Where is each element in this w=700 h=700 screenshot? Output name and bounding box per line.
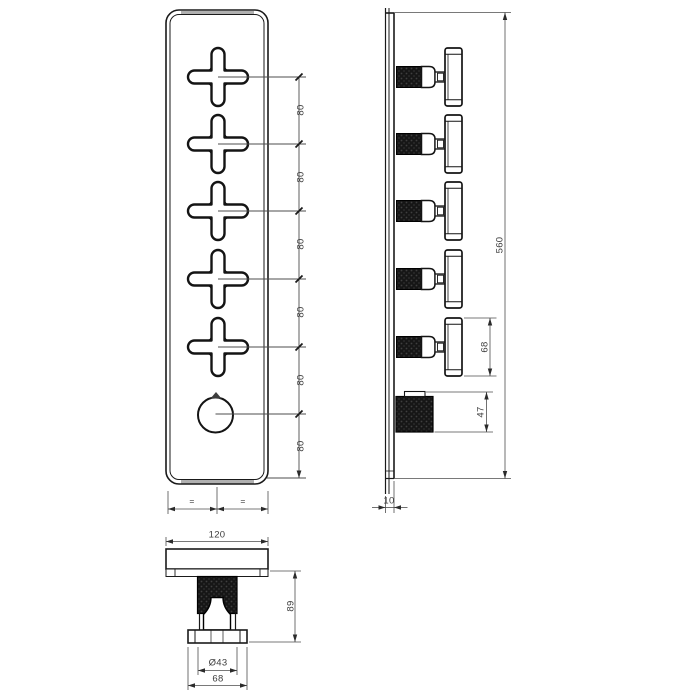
dim-label-spacing-2: 80 (296, 171, 307, 182)
spacing-dimension-chain (296, 74, 303, 479)
front-view (166, 10, 306, 514)
dim-label-equal-left: = (189, 496, 194, 506)
dim-label-spacing-4: 80 (296, 306, 307, 317)
dim-label-spacing-3: 80 (296, 238, 307, 249)
dim-label-plate-width: 120 (209, 530, 226, 541)
dim-label-handle-width: 68 (212, 674, 223, 685)
side-handle-4 (397, 250, 463, 308)
side-handle-3 (397, 182, 463, 240)
bottom-view (166, 537, 301, 690)
volume-knob (198, 398, 233, 433)
dim-label-spacing-5: 80 (296, 374, 307, 385)
dim-label-spacing-6: 80 (296, 440, 307, 451)
side-handle-5 (397, 318, 463, 376)
side-handle-2 (397, 115, 463, 173)
dim-label-spacing-1: 80 (296, 104, 307, 115)
handle-bar-end (188, 630, 247, 643)
side-view (372, 8, 511, 513)
technical-drawing: 80 80 80 80 80 80 = = 560 68 47 10 120 8… (0, 0, 700, 700)
dim-label-knob-projection: 47 (476, 406, 487, 417)
drawing-canvas (0, 0, 700, 700)
plate-edge (166, 549, 268, 569)
dim-label-plate-thickness: 10 (383, 496, 394, 507)
side-handle-1 (397, 48, 463, 106)
knob-lip (405, 392, 426, 397)
side-volume-knob (396, 397, 433, 433)
dim-label-diameter: Ø43 (209, 658, 228, 669)
dim-label-equal-right: = (240, 496, 245, 506)
dim-label-handle-length: 68 (480, 341, 491, 352)
plate-lip (166, 569, 268, 577)
equal-split-dimension (168, 487, 268, 514)
dim-label-overall-height: 560 (495, 237, 506, 254)
dim-label-projection: 89 (286, 600, 297, 611)
